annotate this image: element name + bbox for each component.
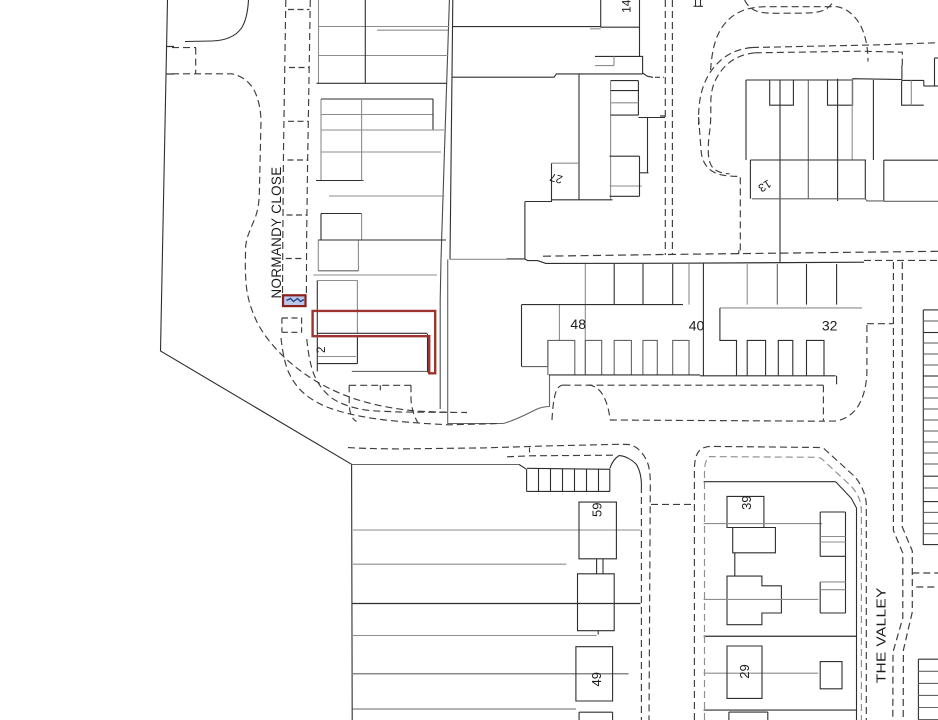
svg-text:THE VALLEY: THE VALLEY	[874, 587, 889, 683]
svg-text:40: 40	[689, 317, 705, 333]
svg-text:14: 14	[619, 0, 633, 13]
svg-text:39: 39	[739, 495, 754, 509]
svg-text:49: 49	[589, 672, 604, 686]
svg-text:2: 2	[316, 347, 328, 353]
svg-text:NORMANDY CLOSE: NORMANDY CLOSE	[269, 167, 284, 299]
svg-text:29: 29	[737, 664, 752, 678]
svg-text:32: 32	[822, 317, 838, 333]
svg-text:48: 48	[570, 316, 586, 332]
svg-text:59: 59	[589, 503, 604, 517]
